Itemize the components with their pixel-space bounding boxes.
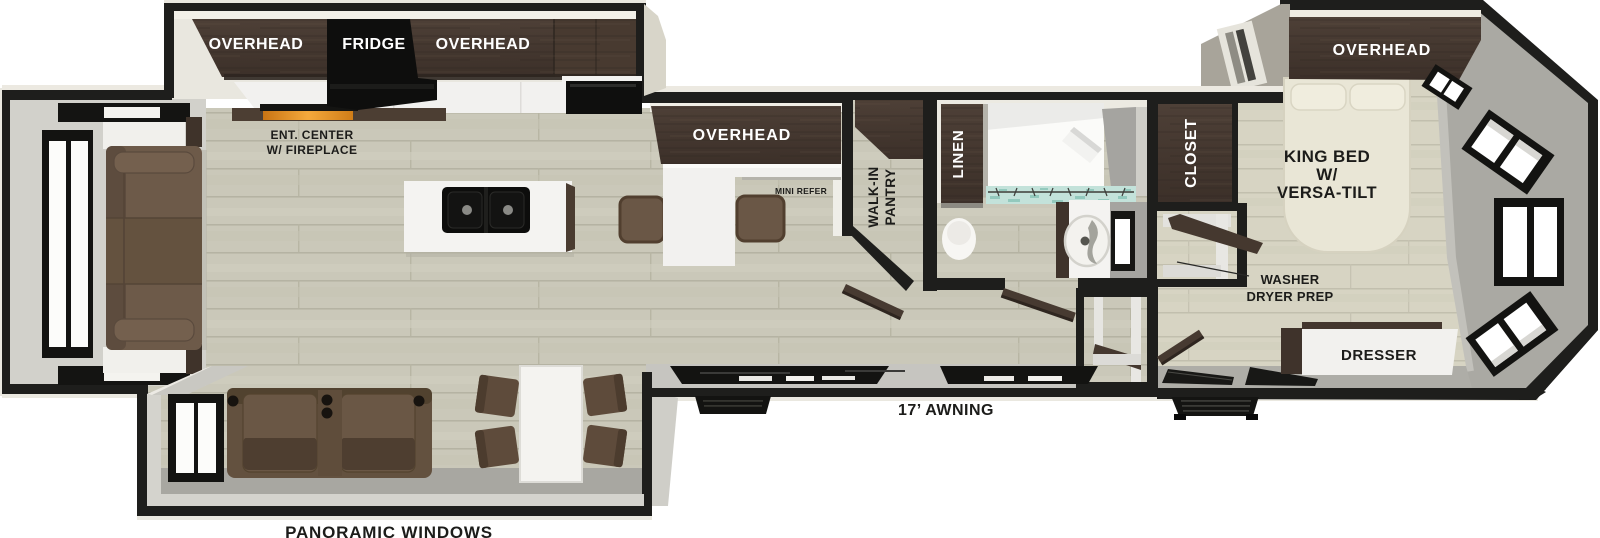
svg-text:OVERHEAD: OVERHEAD — [436, 36, 531, 53]
svg-text:17’ AWNING: 17’ AWNING — [898, 402, 994, 419]
svg-text:KING BED: KING BED — [1284, 147, 1370, 166]
svg-text:DRYER PREP: DRYER PREP — [1246, 289, 1333, 304]
svg-text:OVERHEAD: OVERHEAD — [693, 127, 792, 144]
svg-text:PANORAMIC WINDOWS: PANORAMIC WINDOWS — [285, 523, 493, 538]
svg-text:MINI REFER: MINI REFER — [775, 186, 827, 196]
svg-text:ENT. CENTER: ENT. CENTER — [270, 128, 353, 142]
svg-text:W/ FIREPLACE: W/ FIREPLACE — [267, 143, 358, 157]
svg-text:LINEN: LINEN — [950, 130, 967, 179]
svg-text:CLOSET: CLOSET — [1183, 118, 1200, 188]
svg-text:W/: W/ — [1316, 165, 1338, 184]
svg-text:DRESSER: DRESSER — [1341, 347, 1417, 364]
svg-text:WALK-IN: WALK-IN — [866, 166, 881, 227]
svg-text:VERSA-TILT: VERSA-TILT — [1277, 184, 1377, 202]
svg-text:OVERHEAD: OVERHEAD — [1333, 42, 1432, 59]
svg-text:WASHER: WASHER — [1261, 272, 1320, 287]
svg-text:PANTRY: PANTRY — [883, 169, 898, 226]
svg-text:OVERHEAD: OVERHEAD — [209, 36, 304, 53]
svg-text:FRIDGE: FRIDGE — [342, 36, 405, 53]
